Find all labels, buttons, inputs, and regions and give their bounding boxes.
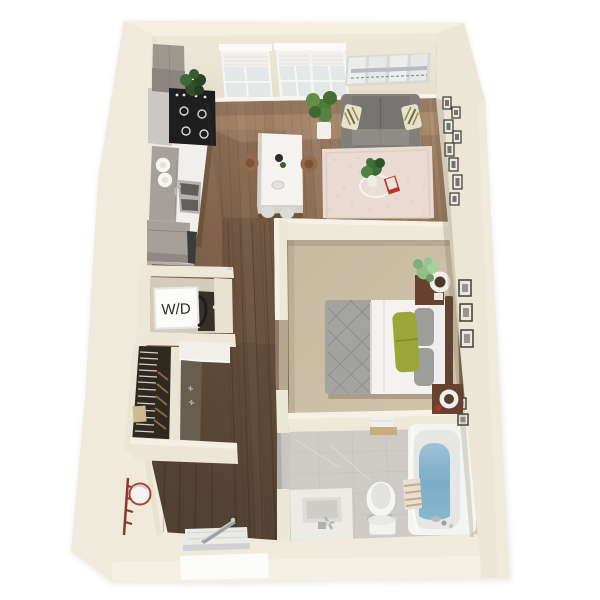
svg-text:W/D: W/D [161,300,191,318]
